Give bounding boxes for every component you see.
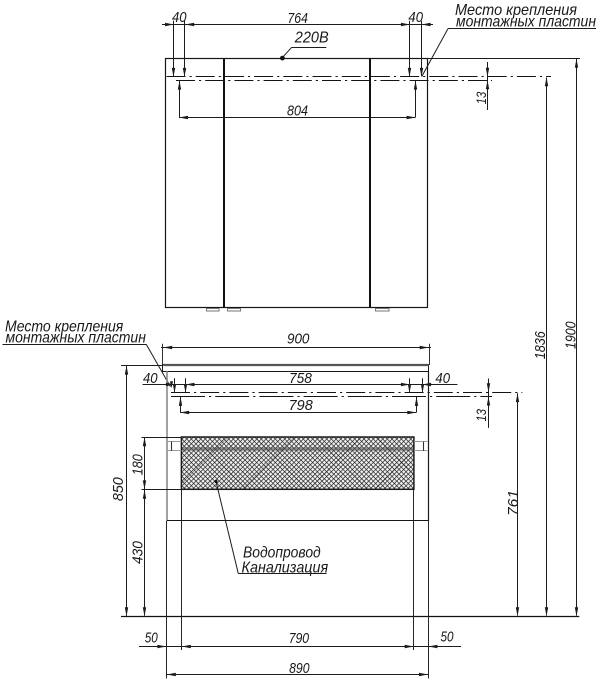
svg-text:40: 40 [143, 370, 158, 387]
svg-text:220В: 220В [294, 30, 329, 47]
svg-text:790: 790 [289, 630, 310, 647]
svg-text:798: 798 [289, 397, 314, 414]
svg-text:50: 50 [441, 629, 455, 646]
svg-text:764: 764 [288, 10, 308, 27]
svg-text:13: 13 [473, 92, 489, 105]
svg-text:монтажных пластин: монтажных пластин [6, 329, 147, 346]
svg-text:804: 804 [287, 102, 308, 119]
svg-text:890: 890 [289, 660, 310, 677]
svg-text:430: 430 [129, 541, 146, 564]
svg-text:40: 40 [408, 9, 423, 26]
svg-text:761: 761 [505, 490, 522, 516]
svg-text:900: 900 [287, 330, 310, 347]
svg-text:40: 40 [435, 370, 450, 387]
svg-text:180: 180 [129, 454, 146, 476]
svg-text:1900: 1900 [563, 321, 580, 349]
svg-text:40: 40 [172, 9, 187, 26]
svg-text:13: 13 [473, 409, 489, 422]
svg-text:758: 758 [289, 370, 312, 387]
svg-text:1836: 1836 [532, 331, 549, 360]
svg-text:50: 50 [145, 630, 159, 647]
svg-text:850: 850 [110, 477, 127, 502]
